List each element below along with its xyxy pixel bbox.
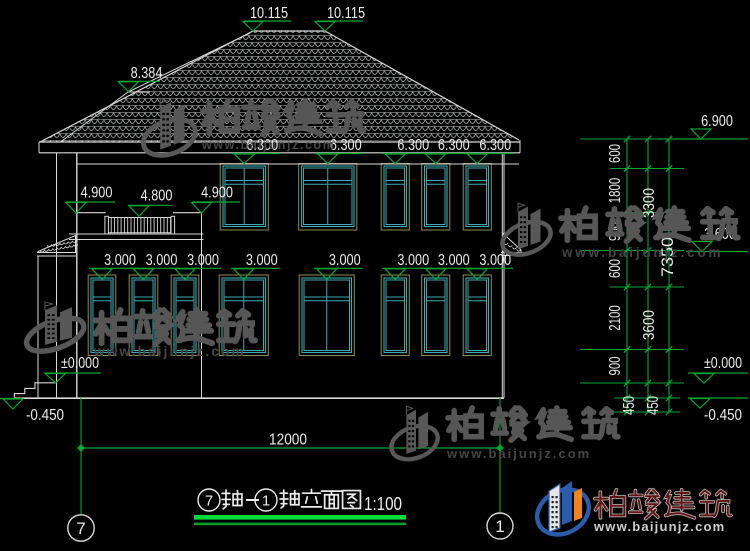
svg-text:4.800: 4.800 — [141, 188, 173, 205]
svg-text:450: 450 — [645, 396, 662, 415]
svg-text:1: 1 — [262, 493, 270, 510]
svg-text:10.115: 10.115 — [327, 5, 365, 22]
svg-text:7: 7 — [76, 519, 85, 538]
svg-text:3.000: 3.000 — [397, 252, 429, 269]
svg-text:www.baijunjz.com: www.baijunjz.com — [446, 446, 591, 461]
svg-text:www.baijunjz.com: www.baijunjz.com — [93, 344, 246, 359]
svg-text:3.000: 3.000 — [246, 252, 278, 269]
svg-text:12000: 12000 — [269, 432, 307, 449]
svg-text:www.baijunjz.com: www.baijunjz.com — [561, 245, 723, 260]
svg-text:3.000: 3.000 — [329, 252, 361, 269]
svg-text:600: 600 — [607, 259, 624, 278]
svg-text:www.baijunjz.com: www.baijunjz.com — [593, 519, 725, 534]
svg-text:www.baijunjz.com: www.baijunjz.com — [201, 138, 335, 152]
svg-text:-0.450: -0.450 — [26, 407, 64, 424]
svg-text:3.000: 3.000 — [104, 252, 136, 269]
svg-text:3.000: 3.000 — [187, 252, 219, 269]
svg-text:8.384: 8.384 — [131, 65, 163, 82]
svg-text:10.115: 10.115 — [250, 5, 288, 22]
svg-text:6.300: 6.300 — [397, 137, 429, 154]
svg-text:6.300: 6.300 — [479, 137, 511, 154]
svg-text:1:100: 1:100 — [364, 494, 402, 514]
svg-text:-0.450: -0.450 — [704, 407, 742, 424]
svg-text:3.000: 3.000 — [438, 252, 470, 269]
svg-text:7: 7 — [205, 493, 213, 510]
svg-text:1: 1 — [495, 517, 504, 536]
svg-text:±0.000: ±0.000 — [704, 355, 742, 372]
svg-text:4.900: 4.900 — [81, 185, 113, 202]
svg-text:3.000: 3.000 — [146, 252, 178, 269]
svg-text:6.300: 6.300 — [438, 137, 470, 154]
svg-text:1800: 1800 — [607, 178, 624, 203]
svg-text:2100: 2100 — [607, 305, 624, 330]
svg-text:900: 900 — [607, 356, 624, 375]
svg-text:600: 600 — [607, 144, 624, 163]
svg-text:6.900: 6.900 — [701, 113, 733, 130]
svg-text:3.000: 3.000 — [479, 252, 511, 269]
svg-text:4.900: 4.900 — [201, 185, 233, 202]
svg-text:450: 450 — [621, 396, 638, 415]
svg-text:3600: 3600 — [641, 310, 658, 340]
